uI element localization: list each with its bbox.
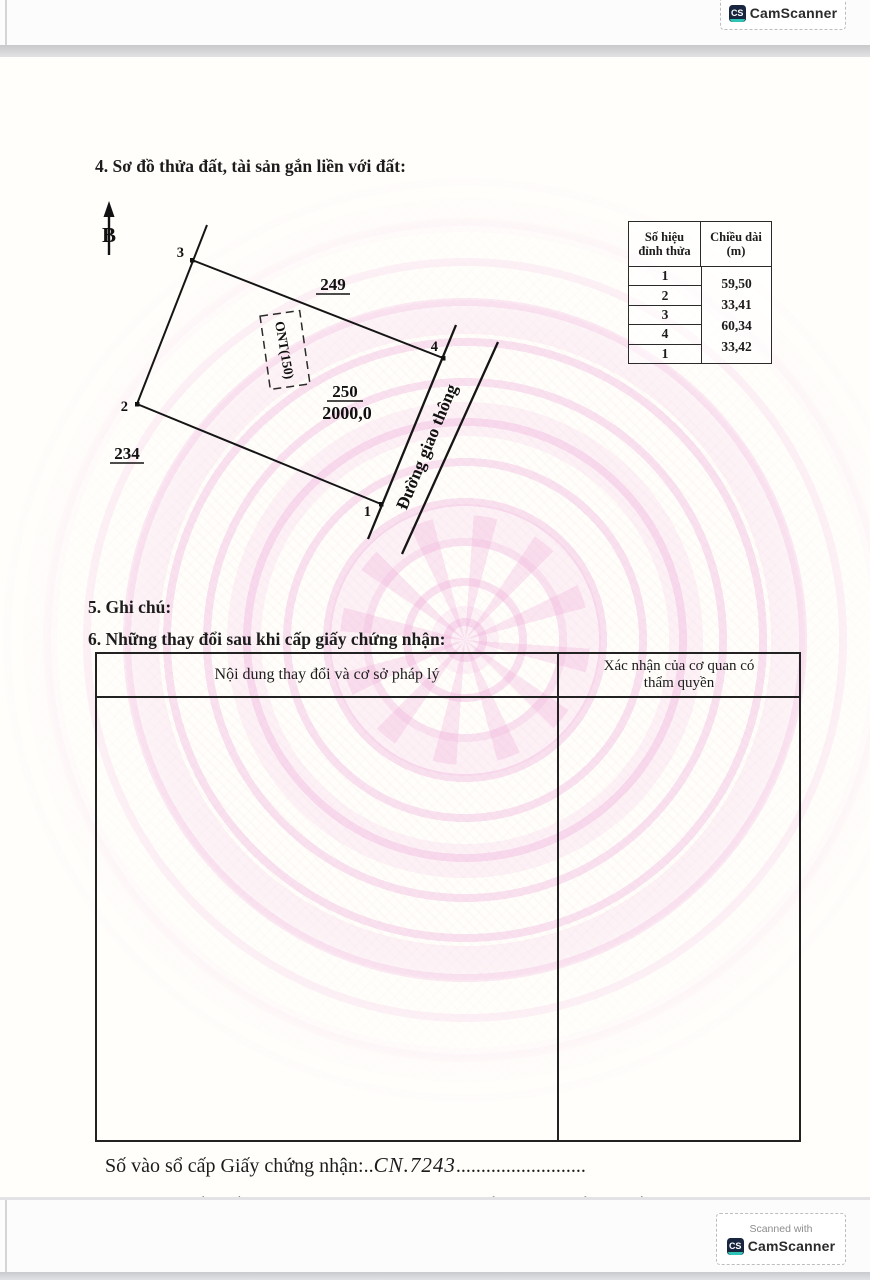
vertex-cell: 3 [629, 306, 701, 325]
land-use-label: ONT(150) [272, 320, 297, 380]
table-divider [557, 654, 559, 1140]
length-cell: 33,41 [721, 298, 751, 311]
edge-length-table: Số hiệu đỉnh thửa Chiều dài (m) 1 2 3 4 … [628, 221, 772, 364]
certificate-page: 4. Sơ đồ thửa đất, tài sản gắn liền với … [0, 57, 870, 1197]
vertex-cell: 4 [629, 325, 701, 344]
changes-col1-header: Nội dung thay đổi và cơ sở pháp lý [97, 654, 557, 696]
edge-length-column: 59,50 33,41 60,34 33,42 [702, 267, 771, 363]
page-edge-line [5, 0, 7, 45]
parcel-area-label: 2000,0 [322, 403, 372, 423]
adjacent-parcel-234: 234 [114, 444, 140, 463]
vertex-3-label: 3 [177, 245, 184, 261]
camscanner-brand-label: CamScanner [748, 1238, 836, 1254]
edge-table-col2-header: Chiều dài (m) [701, 222, 771, 266]
camscanner-brand-label: CamScanner [750, 5, 838, 21]
scanned-with-label: Scanned with [749, 1224, 812, 1235]
vertex-4-label: 4 [431, 339, 438, 355]
north-label: B [102, 223, 116, 247]
length-cell: 33,42 [721, 340, 751, 353]
serial-dots: .. [364, 1155, 374, 1177]
camscanner-watermark-bottom: Scanned with CS CamScanner [716, 1213, 846, 1265]
serial-number-line: Số vào sổ cấp Giấy chứng nhận:..CN.7243.… [105, 1153, 586, 1178]
serial-label: Số vào sổ cấp Giấy chứng nhận: [105, 1155, 364, 1177]
page-edge-line [5, 1200, 7, 1280]
land-use-box: ONT(150) [260, 311, 310, 390]
vertex-1-label: 1 [364, 504, 371, 520]
section4-title: 4. Sơ đồ thửa đất, tài sản gắn liền với … [95, 156, 406, 177]
changes-table: Nội dung thay đổi và cơ sở pháp lý Xác n… [95, 652, 801, 1142]
changes-col2-header: Xác nhận của cơ quan có thẩm quyền [559, 654, 799, 696]
section5-title: 5. Ghi chú: [88, 597, 171, 618]
vertex-cell: 2 [629, 286, 701, 305]
scanned-with-label: Scanned with [751, 0, 814, 2]
length-cell: 60,34 [721, 319, 751, 332]
table-header-line [97, 696, 799, 698]
serial-handwritten-value: CN.7243 [374, 1153, 456, 1177]
serial-dots: .......................... [456, 1155, 586, 1177]
adjacent-parcel-249: 249 [320, 275, 346, 294]
vertex-2-label: 2 [121, 399, 128, 415]
length-cell: 59,50 [721, 277, 751, 290]
vertex-number-column: 1 2 3 4 1 [629, 267, 702, 363]
camscanner-logo-icon: CS [727, 1238, 744, 1255]
parcel-diagram: B Đường giao thông 3 4 1 2 [60, 197, 560, 577]
north-arrow-icon: B [102, 201, 116, 255]
vertex-cell: 1 [629, 345, 701, 363]
page-separator-band [0, 1272, 870, 1280]
camscanner-logo-icon: CS [729, 5, 746, 22]
edge-table-col1-header: Số hiệu đỉnh thửa [629, 222, 701, 266]
camscanner-watermark-top: Scanned with CS CamScanner [720, 0, 846, 30]
section6-title: 6. Những thay đổi sau khi cấp giấy chứng… [88, 629, 446, 650]
vertex-dots [135, 258, 446, 507]
page-separator-band [0, 45, 870, 57]
vertex-cell: 1 [629, 267, 701, 286]
parcel-number-label: 250 [332, 382, 358, 401]
